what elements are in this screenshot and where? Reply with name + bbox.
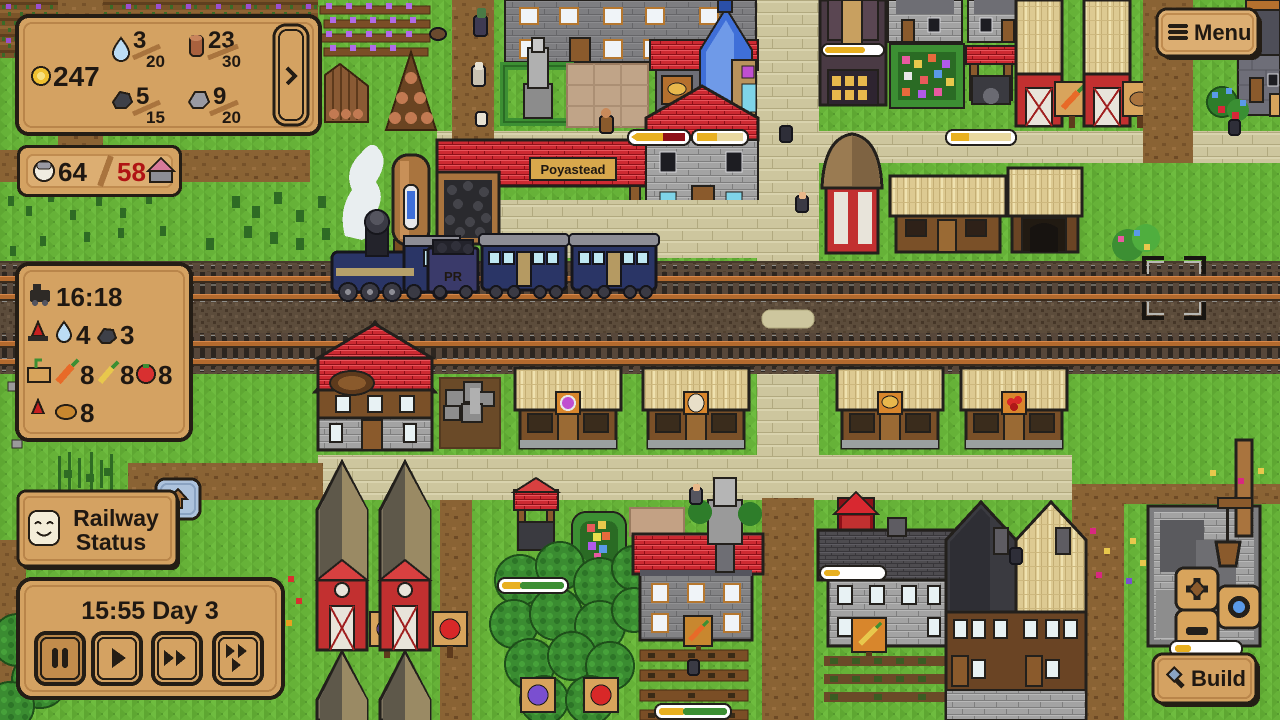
svg-text:15:55 Day 3: 15:55 Day 3 (81, 597, 219, 625)
svg-text:20: 20 (222, 108, 241, 127)
svg-text:15: 15 (146, 108, 165, 127)
svg-text:64: 64 (58, 157, 87, 187)
svg-text:Railway: Railway (73, 505, 159, 531)
svg-text:8: 8 (80, 360, 94, 390)
svg-text:PR: PR (444, 269, 463, 284)
svg-text:4: 4 (76, 320, 91, 350)
svg-text:3: 3 (133, 27, 146, 54)
svg-text:Build: Build (1191, 666, 1246, 691)
svg-text:30: 30 (222, 52, 241, 71)
svg-text:20: 20 (146, 52, 165, 71)
svg-text:16:18: 16:18 (56, 282, 123, 312)
svg-text:Poyastead: Poyastead (540, 162, 605, 177)
svg-text:8: 8 (158, 360, 172, 390)
svg-text:Status: Status (76, 529, 146, 555)
svg-text:Menu: Menu (1194, 20, 1251, 45)
svg-text:8: 8 (80, 398, 94, 428)
svg-text:247: 247 (53, 61, 100, 92)
svg-text:58: 58 (117, 157, 146, 187)
svg-text:8: 8 (120, 360, 134, 390)
svg-text:3: 3 (120, 320, 134, 350)
